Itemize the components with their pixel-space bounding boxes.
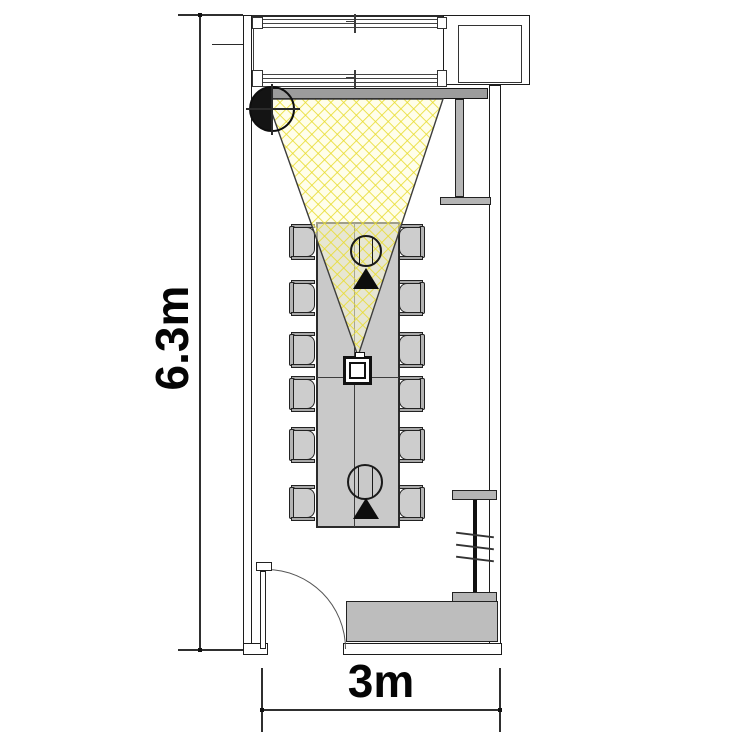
glazing-jamb [437, 70, 447, 87]
display-stand-foot [440, 197, 491, 205]
chair-armrest [399, 312, 423, 316]
chair-armrest [399, 517, 423, 521]
glazing-jamb [252, 70, 263, 87]
chair-armrest [291, 459, 315, 463]
width-dimension-tick-left [261, 668, 262, 732]
chair-armrest [291, 517, 315, 521]
glazing-line [263, 23, 437, 24]
chair-seat [399, 227, 421, 257]
chair-seat [399, 283, 421, 313]
participant-marker-line [372, 238, 374, 264]
chair-armrest [291, 408, 315, 412]
chair-seat [399, 335, 421, 365]
table-camera-lens-tab [355, 352, 365, 358]
width-dimension-tick-right [499, 668, 500, 732]
glazing-line [263, 82, 437, 83]
top-right-wall-block-inner [458, 25, 522, 83]
display-stand-post [455, 99, 464, 197]
participant-marker [350, 235, 382, 267]
chair [289, 427, 316, 463]
adjacent-wall-stub [212, 44, 243, 45]
right-wall [489, 85, 501, 655]
chair-armrest [399, 408, 423, 412]
chair-armrest [399, 256, 423, 260]
chair-armrest [291, 364, 315, 368]
participant-marker [347, 464, 383, 500]
glazing-jamb [252, 17, 263, 29]
chair [398, 332, 425, 368]
height-dimension-tick-bottom [178, 649, 243, 650]
height-dimension-line [199, 15, 200, 650]
glazing-mullion-tick [354, 70, 356, 90]
dimension-endpoint [198, 648, 202, 652]
participant-marker-line [372, 467, 374, 497]
glazing-mullion-step [346, 21, 355, 22]
chair-seat [293, 335, 315, 365]
media-screen-bar [265, 88, 488, 99]
width-dimension-label: 3m [331, 657, 431, 705]
chair [289, 485, 316, 521]
glazing-line [263, 86, 437, 87]
door-swing-arc [266, 569, 346, 649]
height-dimension-label: 6.3m [146, 278, 198, 398]
participant-marker-line [359, 238, 361, 264]
glazing-line [263, 27, 437, 28]
wall-screen-top-bracket [452, 490, 497, 500]
chair [398, 485, 425, 521]
chair [289, 224, 316, 260]
view-direction-triangle [353, 498, 379, 519]
table-camera-device [343, 356, 372, 385]
chair [398, 376, 425, 412]
view-direction-triangle [353, 268, 379, 289]
chair-seat [293, 488, 315, 518]
bottom-wall-right-segment [343, 643, 502, 655]
dimension-endpoint [260, 708, 264, 712]
chair [398, 224, 425, 260]
height-dimension-tick-top [178, 14, 243, 15]
glazing-mullion-step [346, 77, 355, 78]
width-dimension-line [262, 709, 500, 710]
glazing-mullion-tick [354, 14, 356, 33]
chair [289, 376, 316, 412]
chair-armrest [291, 312, 315, 316]
chair [398, 427, 425, 463]
glazing-jamb [437, 17, 447, 29]
chair [398, 280, 425, 316]
chair-seat [399, 379, 421, 409]
chair-armrest [291, 256, 315, 260]
chair-seat [293, 227, 315, 257]
participant-marker-line [358, 467, 360, 497]
chair-armrest [399, 364, 423, 368]
marker-crosshair-horizontal [246, 108, 300, 110]
dimension-endpoint [498, 708, 502, 712]
chair-seat [399, 488, 421, 518]
wall-screen-bottom-bracket [452, 592, 497, 602]
chair-seat [293, 283, 315, 313]
chair [289, 332, 316, 368]
chair [289, 280, 316, 316]
table-camera-body [349, 362, 366, 379]
chair-armrest [399, 459, 423, 463]
door-leaf-cap [256, 562, 272, 571]
marker-crosshair-vertical [271, 84, 273, 135]
chair-seat [293, 379, 315, 409]
credenza [346, 601, 498, 642]
floor-plan: 6.3m 3m [0, 0, 750, 750]
door-leaf [260, 571, 266, 649]
chair-seat [293, 430, 315, 460]
glazing-line [263, 74, 437, 75]
dimension-endpoint [198, 13, 202, 17]
chair-seat [399, 430, 421, 460]
